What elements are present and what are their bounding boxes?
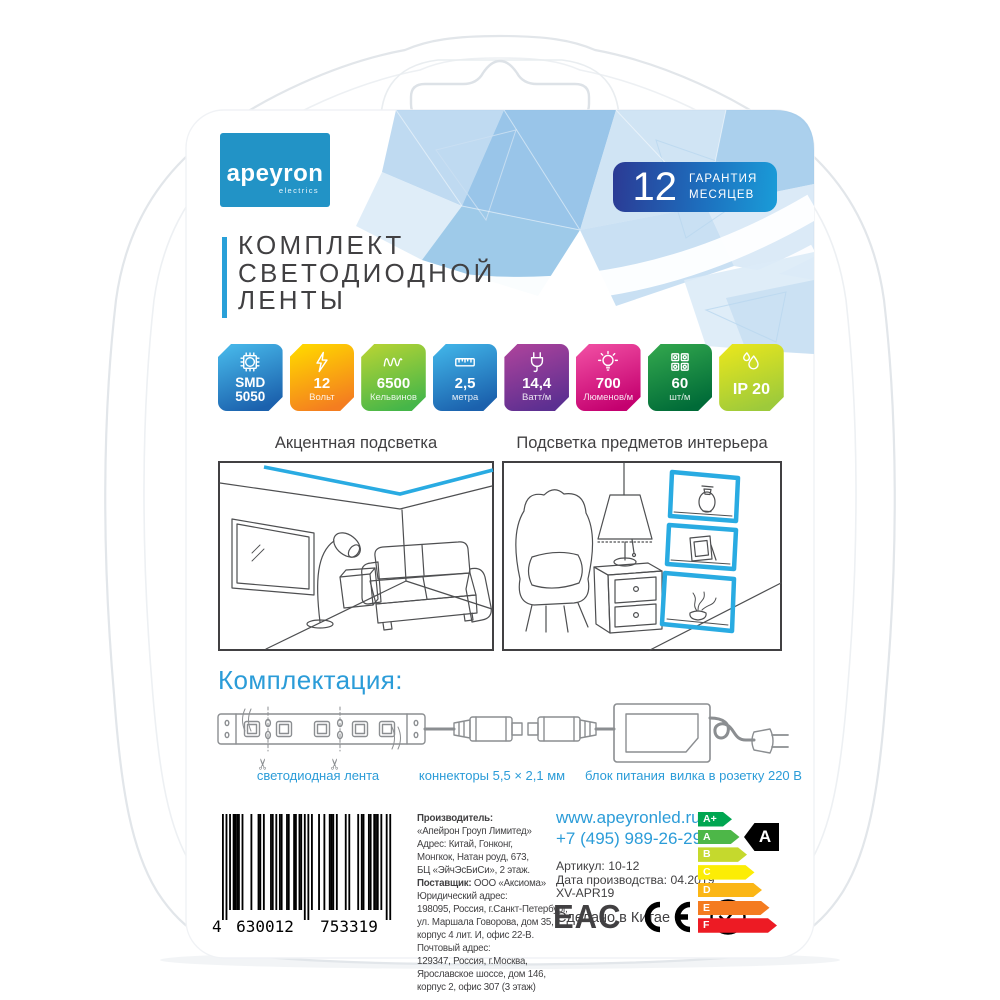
manufacturer-info: Производитель:«Апейрон Гроуп Лимитед»Адр… bbox=[417, 812, 567, 994]
energy-class-A: A bbox=[698, 830, 740, 845]
energy-efficiency-label: A A+ABCDEF bbox=[698, 812, 814, 952]
barcode-group2: 753319 bbox=[320, 917, 378, 936]
manufacturer-line: ул. Маршала Говорова, дом 35, bbox=[417, 916, 567, 929]
badge-value: IP 20 bbox=[733, 382, 770, 398]
manufacturer-line: Юридический адрес: bbox=[417, 890, 567, 903]
brand-logo: apeyron electrics bbox=[220, 133, 330, 207]
title-accent-bar bbox=[222, 237, 227, 318]
accent-lighting-illustration bbox=[218, 461, 494, 651]
power-plug-icon bbox=[524, 349, 550, 375]
energy-class-pointer: A bbox=[744, 823, 779, 851]
bulb-icon bbox=[595, 349, 621, 375]
badge-unit: Ватт/м bbox=[522, 392, 551, 403]
energy-class-A+: A+ bbox=[698, 812, 732, 827]
led-chip-icon bbox=[237, 349, 263, 375]
spec-badge-4: 14,4 Ватт/м bbox=[504, 344, 569, 411]
badge-unit: Вольт bbox=[309, 392, 335, 403]
energy-class-D: D bbox=[698, 883, 762, 898]
badge-value: 14,4 bbox=[522, 376, 551, 392]
barcode-first-digit: 4 bbox=[212, 917, 222, 936]
manufacturer-line: 129347, Россия, г.Москва, bbox=[417, 955, 567, 968]
badge-unit: шт/м bbox=[669, 392, 690, 403]
energy-class-C: C bbox=[698, 865, 755, 880]
barcode-group1: 630012 bbox=[236, 917, 294, 936]
interior-objects-illustration bbox=[502, 461, 782, 651]
lightning-icon bbox=[309, 349, 335, 375]
badge-unit: Кельвинов bbox=[370, 392, 417, 403]
manufacturer-line: Поставщик: ООО «Аксиома» bbox=[417, 877, 567, 890]
warranty-text: ГАРАНТИЯ МЕСЯЦЕВ bbox=[689, 171, 757, 203]
manufacturer-line: 198095, Россия, г.Санкт-Петербург, bbox=[417, 903, 567, 916]
manufacturer-line: корпус 4 лит. И, офис 22-В. bbox=[417, 929, 567, 942]
badge-value: 60 bbox=[672, 376, 689, 392]
spec-badge-2: 6500 Кельвинов bbox=[361, 344, 426, 411]
brand-tagline: electrics bbox=[279, 186, 319, 195]
badge-value: SMD bbox=[235, 376, 265, 390]
badge-unit: метра bbox=[452, 392, 478, 403]
badge-value: 2,5 bbox=[455, 376, 476, 392]
warranty-months-number: 12 bbox=[633, 167, 678, 207]
spec-badge-3: 2,5 метра bbox=[433, 344, 498, 411]
manufacturer-line: Ярославское шоссе, дом 146, bbox=[417, 968, 567, 981]
energy-class-E: E bbox=[698, 901, 770, 916]
right-panel-caption: Подсветка предметов интерьера bbox=[502, 434, 782, 453]
badge-value: 700 bbox=[596, 376, 621, 392]
package-shot: apeyron electrics 12 ГАРАНТИЯ МЕСЯЦЕВ КО… bbox=[0, 0, 1000, 1000]
eac-mark: EAC bbox=[553, 898, 621, 937]
warranty-badge: 12 ГАРАНТИЯ МЕСЯЦЕВ bbox=[613, 162, 777, 212]
energy-class-B: B bbox=[698, 847, 747, 862]
manufacturer-line: Адрес: Китай, Гонконг, bbox=[417, 838, 567, 851]
manufacturer-line: Почтовый адрес: bbox=[417, 942, 567, 955]
badge-value: 6500 bbox=[377, 376, 410, 392]
energy-class-F: F bbox=[698, 918, 777, 933]
spec-badge-7: IP 20 bbox=[719, 344, 784, 411]
color-temp-wave-icon bbox=[380, 349, 406, 375]
spec-badge-1: 12 Вольт bbox=[290, 344, 355, 411]
ruler-icon bbox=[452, 349, 478, 375]
manufacturer-line: корпус 2, офис 307 (3 этаж) bbox=[417, 981, 567, 994]
led-grid-icon bbox=[667, 349, 693, 375]
manufacturer-line: Производитель: bbox=[417, 812, 567, 825]
ean13-barcode: 4 630012 753319 bbox=[212, 810, 397, 938]
water-drops-icon bbox=[738, 349, 764, 375]
kit-item-label-strip: светодиодная лента bbox=[218, 768, 418, 783]
badge-unit: Люменов/м bbox=[583, 392, 633, 403]
badge-unit: 5050 bbox=[235, 390, 265, 404]
spec-badge-5: 700 Люменов/м bbox=[576, 344, 641, 411]
manufacturer-line: БЦ «ЭйчЭсБиСи», 2 этаж. bbox=[417, 864, 567, 877]
kit-contents-illustration: ✂ ✂ bbox=[214, 698, 799, 776]
spec-badges-row: SMD 5050 12 Вольт 6500 Кельвинов 2,5 мет… bbox=[218, 344, 784, 411]
ce-icon bbox=[636, 900, 694, 934]
kit-item-label-plug: вилка в розетку 220 В bbox=[646, 768, 826, 783]
badge-value: 12 bbox=[314, 376, 331, 392]
kit-heading: Комплектация: bbox=[218, 665, 403, 696]
manufacturer-line: «Апейрон Гроуп Лимитед» bbox=[417, 825, 567, 838]
product-title: КОМПЛЕКТ СВЕТОДИОДНОЙ ЛЕНТЫ bbox=[238, 232, 495, 315]
left-panel-caption: Акцентная подсветка bbox=[218, 434, 494, 453]
manufacturer-line: Монгкок, Натан роуд, 673, bbox=[417, 851, 567, 864]
spec-badge-0: SMD 5050 bbox=[218, 344, 283, 411]
spec-badge-6: 60 шт/м bbox=[648, 344, 713, 411]
brand-name: apeyron bbox=[227, 163, 324, 185]
